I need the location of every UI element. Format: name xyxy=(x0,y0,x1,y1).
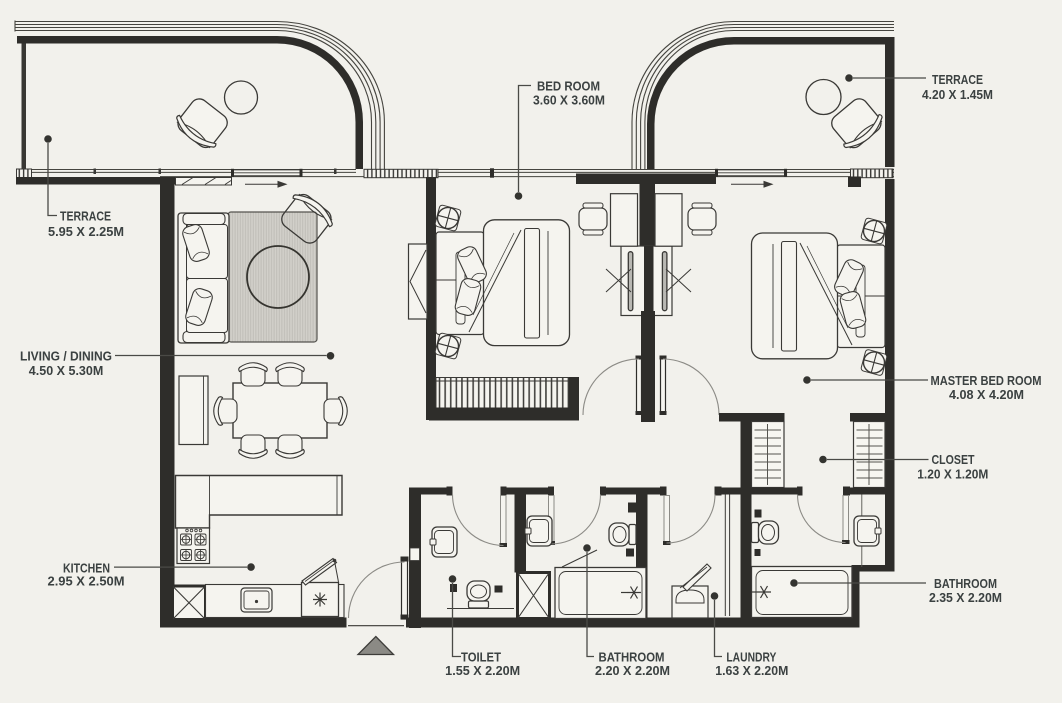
svg-text:MASTER BED ROOM: MASTER BED ROOM xyxy=(931,374,1042,388)
svg-text:BED ROOM: BED ROOM xyxy=(537,79,600,93)
svg-text:LIVING / DINING: LIVING / DINING xyxy=(20,349,112,363)
svg-text:2.35 X 2.20M: 2.35 X 2.20M xyxy=(929,591,1002,605)
svg-text:BATHROOM: BATHROOM xyxy=(599,650,665,664)
svg-text:4.20 X 1.45M: 4.20 X 1.45M xyxy=(922,88,993,102)
svg-text:TOILET: TOILET xyxy=(461,650,501,664)
svg-text:TERRACE: TERRACE xyxy=(932,73,983,87)
svg-text:4.50 X 5.30M: 4.50 X 5.30M xyxy=(29,364,104,378)
svg-text:5.95 X 2.25M: 5.95 X 2.25M xyxy=(48,225,124,239)
svg-text:KITCHEN: KITCHEN xyxy=(63,561,110,575)
svg-text:BATHROOM: BATHROOM xyxy=(934,577,997,591)
svg-text:1.55 X 2.20M: 1.55 X 2.20M xyxy=(445,664,520,678)
svg-text:2.95 X 2.50M: 2.95 X 2.50M xyxy=(48,575,125,589)
svg-text:1.63 X 2.20M: 1.63 X 2.20M xyxy=(715,664,788,678)
svg-text:3.60 X 3.60M: 3.60 X 3.60M xyxy=(533,93,605,107)
svg-text:LAUNDRY: LAUNDRY xyxy=(726,650,777,664)
svg-text:TERRACE: TERRACE xyxy=(60,210,111,224)
svg-text:1.20 X 1.20M: 1.20 X 1.20M xyxy=(917,467,988,481)
svg-text:4.08 X 4.20M: 4.08 X 4.20M xyxy=(949,388,1024,402)
svg-text:CLOSET: CLOSET xyxy=(932,453,975,467)
svg-text:2.20 X 2.20M: 2.20 X 2.20M xyxy=(595,664,670,678)
